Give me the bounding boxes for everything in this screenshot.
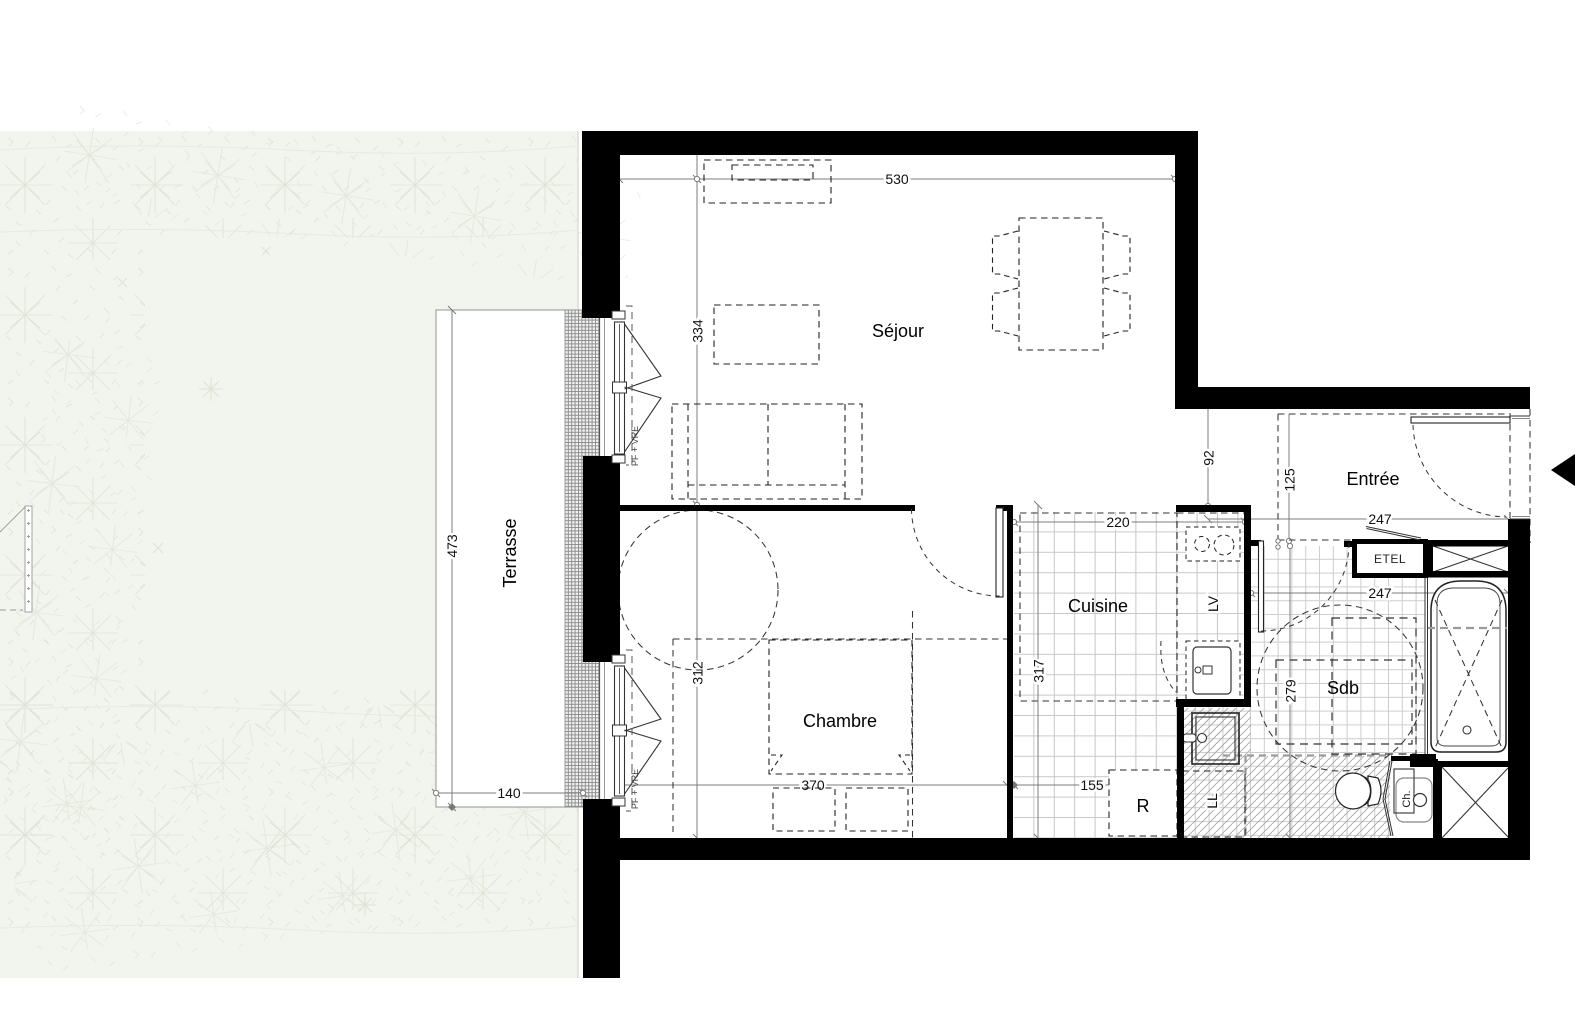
svg-text:PF + VRE: PF + VRE	[630, 769, 640, 809]
svg-text:LL: LL	[1204, 793, 1220, 809]
svg-text:317: 317	[1031, 659, 1047, 683]
svg-text:PF + VRE: PF + VRE	[630, 426, 640, 466]
svg-text:279: 279	[1283, 679, 1299, 703]
svg-text:Séjour: Séjour	[872, 321, 924, 341]
svg-text:Ch.: Ch.	[1401, 790, 1413, 807]
svg-text:Cuisine: Cuisine	[1068, 596, 1128, 616]
svg-text:530: 530	[885, 171, 909, 187]
svg-text:220: 220	[1106, 514, 1130, 530]
svg-text:370: 370	[801, 777, 825, 793]
svg-text:247: 247	[1368, 511, 1392, 527]
svg-text:312: 312	[690, 661, 706, 685]
svg-text:473: 473	[444, 534, 460, 558]
svg-text:125: 125	[1282, 468, 1298, 492]
svg-text:Chambre: Chambre	[803, 711, 877, 731]
svg-text:155: 155	[1080, 777, 1104, 793]
svg-text:140: 140	[497, 785, 521, 801]
svg-text:334: 334	[690, 319, 706, 343]
svg-text:92: 92	[1201, 450, 1217, 466]
svg-text:247: 247	[1368, 585, 1392, 601]
svg-text:Terrasse: Terrasse	[500, 518, 520, 587]
svg-text:Sdb: Sdb	[1327, 678, 1359, 698]
svg-text:R: R	[1137, 796, 1150, 816]
svg-text:ETEL: ETEL	[1374, 552, 1406, 566]
svg-text:LV: LV	[1205, 595, 1221, 612]
svg-text:Entrée: Entrée	[1346, 469, 1399, 489]
